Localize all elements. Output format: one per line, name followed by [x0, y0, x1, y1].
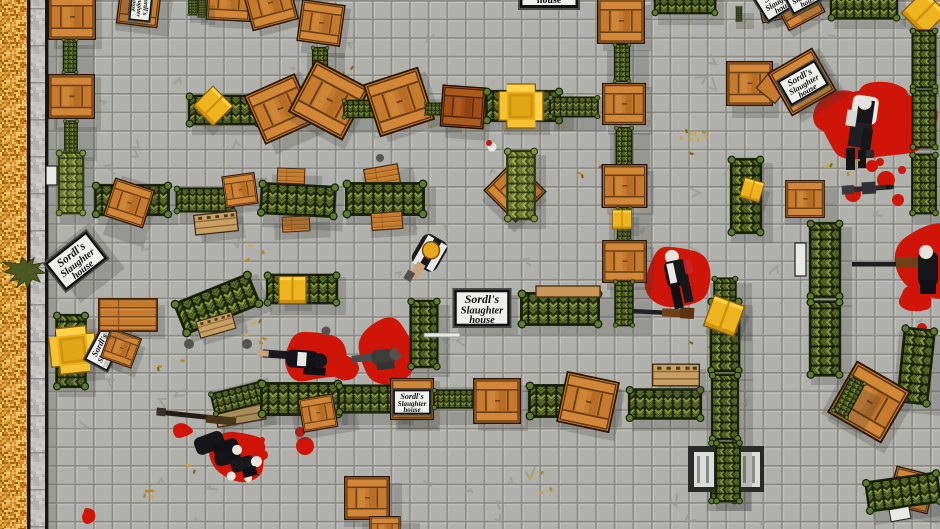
svg-text:house: house — [537, 0, 562, 6]
